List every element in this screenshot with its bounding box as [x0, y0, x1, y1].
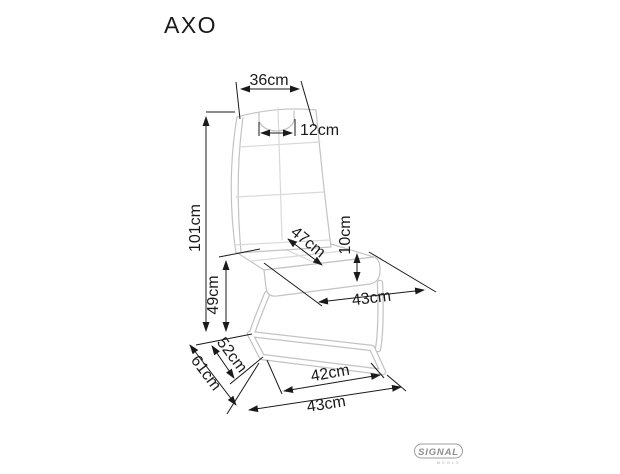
- label-total-depth: 61cm: [187, 353, 224, 394]
- logo-brand-text: SIGNAL: [418, 447, 459, 458]
- chair-dimension-drawing: AXO 36cm 12cm 101cm 49cm 10cm 47cm 43cm …: [0, 0, 620, 474]
- label-seat-width: 43cm: [351, 288, 392, 310]
- brand-logo: SIGNAL MEBLE: [415, 444, 463, 465]
- label-total-height: 101cm: [187, 204, 204, 252]
- product-title: AXO: [164, 12, 217, 38]
- dimension-diagram-page: AXO 36cm 12cm 101cm 49cm 10cm 47cm 43cm …: [0, 0, 620, 474]
- label-handle-width: 12cm: [300, 122, 339, 139]
- logo-sub-text: MEBLE: [437, 460, 462, 465]
- label-cushion-thickness: 10cm: [337, 215, 354, 254]
- label-backrest-width: 36cm: [249, 72, 288, 89]
- label-seat-height: 49cm: [205, 275, 222, 314]
- label-base-width: 43cm: [306, 393, 347, 416]
